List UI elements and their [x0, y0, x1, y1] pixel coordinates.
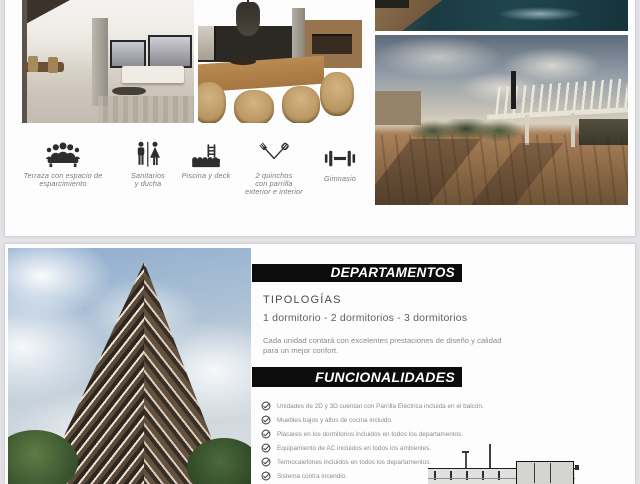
- coffee-table-shape: [112, 87, 146, 95]
- plan-divider-shape: [550, 463, 551, 483]
- amenity-gimnasio: Gimnasio: [300, 138, 380, 183]
- feature-text: Sistema contra incendio.: [277, 473, 347, 480]
- pendant-lamp-shape: [236, 2, 260, 36]
- sofa-shape: [122, 66, 184, 83]
- plan-mast-shape: [465, 453, 467, 469]
- tipologias-heading: TIPOLOGÍAS: [263, 294, 342, 306]
- building-exterior-render: [8, 248, 251, 484]
- check-circle-icon: [261, 443, 271, 453]
- amenities-panel: Terraza con espacio de esparcimiento San…: [5, 0, 635, 236]
- column-shape: [292, 8, 305, 62]
- tipologias-description: Cada unidad contará con excelentes prest…: [263, 336, 501, 355]
- living-room-render: [22, 0, 194, 123]
- description-line: para un mejor confort.: [263, 346, 501, 356]
- planter-shape: [375, 0, 409, 8]
- floor-plan-drawing: [428, 441, 580, 484]
- window-shape: [110, 40, 146, 68]
- column-shape: [92, 18, 108, 106]
- chimney-shape: [511, 71, 516, 109]
- dining-room-render: [198, 0, 362, 123]
- rug-shape: [98, 96, 194, 123]
- feature-row: Muebles bajos y altos de cocina incluido…: [261, 416, 484, 424]
- check-circle-icon: [261, 401, 271, 411]
- feature-row: Unidades de 2D y 3D cuentan con Parrilla…: [261, 402, 484, 410]
- plan-mast-shape: [489, 444, 491, 469]
- dumbbell-icon: [324, 138, 356, 171]
- departamentos-panel: DEPARTAMENTOS TIPOLOGÍAS 1 dormitorio - …: [5, 244, 635, 484]
- funcionalidades-banner: FUNCIONALIDADES: [252, 367, 462, 387]
- description-line: Cada unidad contará con excelentes prest…: [263, 336, 501, 346]
- check-circle-icon: [261, 457, 271, 467]
- departamentos-title: DEPARTAMENTOS: [331, 265, 455, 280]
- terrace-render: [375, 35, 628, 205]
- check-circle-icon: [261, 415, 271, 425]
- chair-shape: [48, 57, 58, 73]
- restroom-icon: [134, 138, 162, 168]
- wicker-chair-shape: [234, 90, 274, 123]
- ceiling-beam-shape: [22, 0, 70, 26]
- feature-text: Unidades de 2D y 3D cuentan con Parrilla…: [277, 403, 484, 410]
- meeting-icon: [45, 138, 81, 168]
- amenity-label: Sanitarios y ducha: [131, 172, 165, 188]
- feature-text: Equipamiento de AC incluidos en todos lo…: [277, 445, 431, 452]
- feature-row: Placares en los dormitorios incluidos en…: [261, 430, 484, 438]
- centerpiece-shape: [230, 58, 256, 65]
- amenity-label: 2 quinchos con parrilla exterior e inter…: [245, 172, 303, 196]
- feature-text: Termocalefones incluidos en todos los de…: [277, 459, 431, 466]
- pool-ladder-icon: [192, 138, 220, 168]
- funcionalidades-title: FUNCIONALIDADES: [315, 369, 455, 385]
- chair-shape: [28, 56, 38, 72]
- plan-marker-shape: [575, 465, 579, 470]
- check-circle-icon: [261, 429, 271, 439]
- grill-niche-shape: [312, 34, 352, 54]
- pool-render: [375, 0, 628, 31]
- departamentos-banner: DEPARTAMENTOS: [252, 264, 462, 282]
- wicker-chair-shape: [198, 82, 226, 123]
- grill-utensils-icon: [259, 138, 289, 168]
- feature-text: Muebles bajos y altos de cocina incluido…: [277, 417, 393, 424]
- plan-mast-cap-shape: [462, 451, 469, 453]
- wicker-chair-shape: [282, 86, 320, 123]
- tipologias-options: 1 dormitorio - 2 dormitorios - 3 dormito…: [263, 312, 467, 324]
- window-shape: [148, 35, 192, 68]
- wicker-chair-shape: [320, 72, 354, 116]
- plan-rooms-shape: [516, 461, 574, 484]
- amenity-label: Gimnasio: [324, 175, 356, 183]
- glass-door-shape: [198, 26, 216, 60]
- feature-text: Placares en los dormitorios incluidos en…: [277, 431, 463, 438]
- amenity-terraza: Terraza con espacio de esparcimiento: [13, 138, 113, 188]
- amenity-label: Terraza con espacio de esparcimiento: [24, 172, 103, 188]
- plan-divider-shape: [534, 463, 535, 483]
- water-reflection-shape: [485, 4, 595, 26]
- amenity-label: Piscina y deck: [182, 172, 231, 180]
